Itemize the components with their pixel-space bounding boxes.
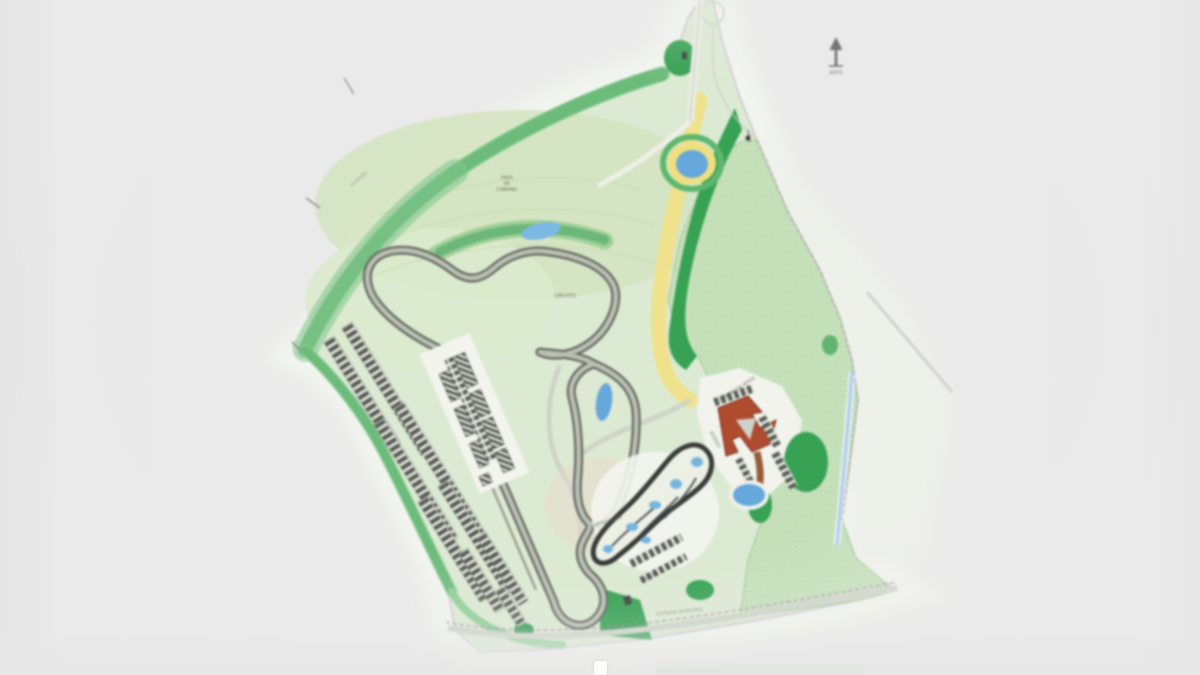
bottom-edge-artifact [656, 666, 866, 675]
label-camping-3: CAMPING [497, 187, 518, 192]
scrubber-artifact [594, 661, 607, 675]
beach-pond [663, 137, 721, 189]
video-still-frame: ÁREA DE CAMPING CIRCUITO KARTÓDROMO BOXE… [0, 0, 1200, 675]
label-camping-1: ÁREA [501, 175, 513, 180]
label-camping-2: DE [504, 181, 510, 186]
north-arrow-head [830, 37, 843, 50]
north-caption: NORTE [829, 70, 843, 75]
survey-marker [746, 136, 751, 141]
east-pond [729, 480, 769, 510]
site-plan: ÁREA DE CAMPING CIRCUITO KARTÓDROMO BOXE… [0, 0, 1200, 675]
north-arrow: NORTE [829, 37, 843, 75]
label-circuit: CIRCUITO [554, 293, 576, 298]
gate-building [682, 52, 687, 59]
